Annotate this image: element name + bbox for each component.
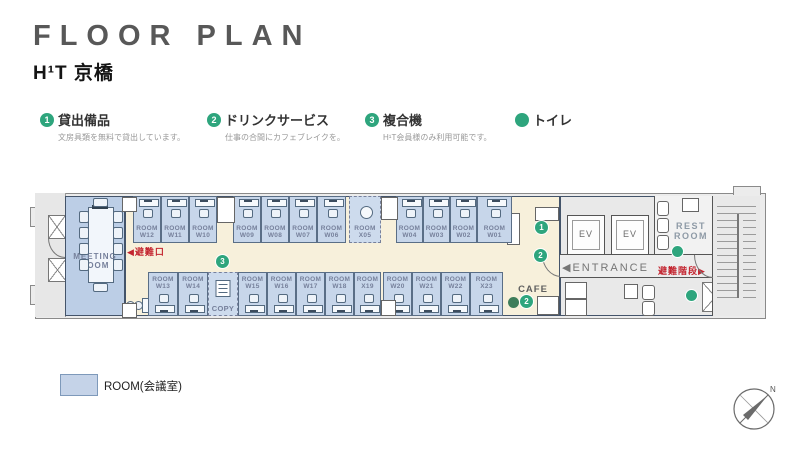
restroom-label: REST ROOM [670, 221, 712, 241]
chair-icon [307, 294, 317, 303]
locker-icon [565, 282, 587, 299]
chair-icon [452, 294, 462, 303]
room-cell-W03: ROOMW03 [423, 196, 450, 243]
room-label: ROOMW21 [413, 276, 440, 290]
room-label: ROOMW03 [424, 225, 449, 239]
room-label: ROOMW11 [162, 225, 188, 239]
room-label: ROOMW12 [134, 225, 160, 239]
room-cell-W06: ROOMW06 [317, 196, 346, 243]
room-label: ROOMW06 [318, 225, 345, 239]
room-cell-X19: ROOMX19 [354, 272, 381, 316]
elevator: EV [611, 215, 649, 255]
plant-icon [508, 297, 519, 308]
room-cell-W17: ROOMW17 [296, 272, 325, 316]
pillar [122, 197, 137, 212]
chair-icon [143, 209, 153, 218]
room-cell-W15: ROOMW15 [238, 272, 267, 316]
chair-icon [93, 283, 108, 292]
chair-icon [336, 294, 346, 303]
chair-icon [423, 294, 433, 303]
pillar [122, 303, 137, 318]
room-label: ROOMX23 [471, 276, 502, 290]
room-label: ROOMW07 [290, 225, 316, 239]
chair-icon [79, 243, 89, 255]
chair-icon [483, 294, 493, 303]
building-notch [733, 186, 761, 195]
room-cell-W18: ROOMW18 [325, 272, 354, 316]
emergency-exit-label: ◀避難口 [127, 245, 165, 258]
room-cell-W11: ROOMW11 [161, 196, 189, 243]
cafe-counter-icon [537, 296, 559, 315]
toilet-icon [657, 201, 669, 216]
chair-icon [491, 209, 501, 218]
toilet-icon [657, 218, 669, 233]
shaft-icon [48, 215, 66, 239]
chair-icon [189, 294, 199, 303]
legend-label: ドリンクサービス [225, 110, 329, 129]
room-label: ROOMW18 [326, 276, 353, 290]
monitor-icon [492, 200, 500, 202]
legend-label: トイレ [533, 110, 572, 129]
floor-plan-page: { "header": { "title": "FLOOR PLAN", "su… [0, 0, 800, 450]
legend-caption: 文房具類を無料で貸出しています。 [58, 132, 185, 143]
room-label: ROOMW15 [239, 276, 266, 290]
room-cell-W22: ROOMW22 [441, 272, 470, 316]
monitor-icon [300, 200, 308, 202]
room-cell-W13: ROOMW13 [148, 272, 178, 316]
emergency-staircase [712, 196, 760, 316]
room-cell-W21: ROOMW21 [412, 272, 441, 316]
room-label: ROOMW09 [234, 225, 260, 239]
chair-icon [364, 294, 374, 303]
chair-icon [113, 243, 123, 255]
room-cell-W14: ROOMW14 [178, 272, 208, 316]
elevator: EV [567, 215, 605, 255]
pillar [381, 197, 398, 220]
chair-icon [328, 209, 338, 218]
chair-icon [299, 209, 309, 218]
room-legend-swatch [60, 374, 98, 396]
legend-item-lending: 1 貸出備品 文房具類を無料で貸出しています。 [40, 110, 185, 143]
cafe-label: CAFE [516, 284, 550, 295]
chair-icon [271, 209, 281, 218]
room-label: ROOMX05 [350, 225, 380, 239]
room-label: ROOMW17 [297, 276, 324, 290]
chair-icon [79, 259, 89, 271]
chair-icon [79, 227, 89, 239]
monitor-icon [461, 200, 469, 202]
room-cell-W10: ROOMW10 [189, 196, 217, 243]
location-title: H¹T 京橋 [33, 58, 114, 85]
monitor-icon [190, 310, 198, 312]
marker-copier: 3 [216, 255, 229, 268]
monitor-icon [279, 310, 287, 312]
entrance-label: ◀ENTRANCE [562, 261, 670, 274]
locker-icon [565, 299, 587, 316]
monitor-icon [484, 310, 492, 312]
room-cell-X05: ROOMX05 [349, 196, 381, 243]
room-label: ROOMW01 [478, 225, 511, 239]
room-label: ROOMW08 [262, 225, 288, 239]
room-cell-W16: ROOMW16 [267, 272, 296, 316]
monitor-icon [144, 200, 152, 202]
legend-item-toilet: トイレ [515, 110, 572, 129]
page-title: FLOOR PLAN [33, 20, 312, 53]
legend-label: 貸出備品 [58, 110, 110, 129]
floor-plan: MEETING ROOM ◀避難口 CAFE EV EV REST ROOM ◀… [30, 185, 770, 325]
chair-icon [278, 294, 288, 303]
room-label: ROOMX19 [355, 276, 380, 290]
legend-caption: H¹T会員様のみ利用可能です。 [383, 132, 492, 143]
room-label: ROOMW04 [397, 225, 422, 239]
monitor-icon [272, 200, 280, 202]
marker-1-icon: 1 [40, 113, 54, 127]
toilet-dot [686, 290, 697, 301]
room-cell-W12: ROOMW12 [133, 196, 161, 243]
room-label: ROOMW22 [442, 276, 469, 290]
chair-icon [113, 211, 123, 223]
room-label: ROOMW16 [268, 276, 295, 290]
monitor-icon [329, 200, 337, 202]
chair-icon [460, 209, 470, 218]
monitor-icon [172, 200, 180, 202]
chair-icon [199, 209, 209, 218]
monitor-icon [200, 200, 208, 202]
monitor-icon [434, 200, 442, 202]
room-label: ROOMW02 [451, 225, 476, 239]
legend-item-drink: 2 ドリンクサービス 仕事の合間にカフェブレイクを。 [207, 110, 345, 143]
room-cell-W07: ROOMW07 [289, 196, 317, 243]
monitor-icon [250, 310, 258, 312]
monitor-icon [308, 310, 316, 312]
marker-2-icon: 2 [207, 113, 221, 127]
room-cell-W09: ROOMW09 [233, 196, 261, 243]
monitor-icon [337, 310, 345, 312]
room-cell-W02: ROOMW02 [450, 196, 477, 243]
legend-caption: 仕事の合間にカフェブレイクを。 [225, 132, 345, 143]
marker-lending: 1 [535, 221, 548, 234]
sink-icon [682, 198, 699, 212]
room-cell-X23: ROOMX23 [470, 272, 503, 316]
toilet-icon [642, 285, 655, 300]
toilet-dot [672, 246, 683, 257]
toilet-icon [657, 235, 669, 250]
room-cell-W08: ROOMW08 [261, 196, 289, 243]
room-cell-W01: ROOMW01 [477, 196, 512, 243]
room-legend-label: ROOM(会議室) [104, 378, 182, 394]
marker-3-icon: 3 [365, 113, 379, 127]
chair-icon [79, 211, 89, 223]
compass-north-label: N [770, 385, 776, 394]
compass-icon: N [724, 382, 784, 438]
chair-icon [159, 294, 169, 303]
monitor-icon [407, 200, 415, 202]
copier-icon [216, 280, 231, 297]
chair-icon [171, 209, 181, 218]
pillar [217, 197, 235, 223]
room-cell-W04: ROOMW04 [396, 196, 423, 243]
sink-icon [624, 284, 638, 299]
lending-shelf-icon [535, 207, 559, 221]
legend-label: 複合機 [383, 110, 422, 129]
toilet-icon [642, 301, 655, 316]
pillar [381, 300, 396, 316]
chair-icon [249, 294, 259, 303]
monitor-icon [453, 310, 461, 312]
chair-icon [113, 227, 123, 239]
room-label: ROOMW20 [384, 276, 411, 290]
room-label: ROOMW13 [149, 276, 177, 290]
round-table-icon [360, 206, 373, 219]
meeting-table [88, 207, 114, 283]
monitor-icon [244, 200, 252, 202]
marker-drink-cafe: 2 [520, 295, 533, 308]
marker-drink-entrance: 2 [534, 249, 547, 262]
toilet-dot-icon [515, 113, 529, 127]
monitor-icon [424, 310, 432, 312]
copy-label: COPY [209, 305, 237, 312]
room-label: ROOMW10 [190, 225, 216, 239]
chair-icon [93, 198, 108, 207]
chair-icon [243, 209, 253, 218]
chair-icon [406, 209, 416, 218]
legend-item-copier: 3 複合機 H¹T会員様のみ利用可能です。 [365, 110, 492, 143]
chair-icon [433, 209, 443, 218]
chair-icon [113, 259, 123, 271]
copy-booth: COPY [208, 272, 238, 316]
monitor-icon [365, 310, 373, 312]
monitor-icon [160, 310, 168, 312]
room-label: ROOMW14 [179, 276, 207, 290]
